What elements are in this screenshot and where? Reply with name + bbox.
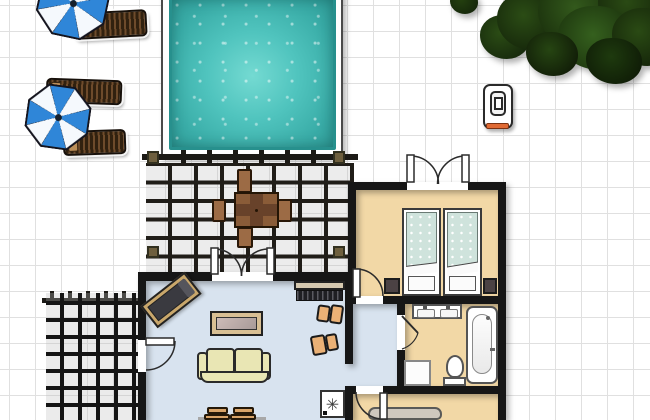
coffee-table-top (216, 317, 257, 330)
pergola-post-tick (207, 150, 212, 163)
bed-pillow (408, 276, 435, 291)
pergola-post-tick (285, 150, 290, 163)
chair-back (207, 407, 228, 414)
chair-seat (204, 414, 230, 420)
outdoor-chair[interactable] (237, 227, 253, 248)
chair-seat (230, 414, 256, 420)
hallway-floor (345, 300, 401, 390)
stove[interactable]: ✳ (320, 390, 345, 418)
stove-corner-dot (323, 411, 327, 415)
sideboard-top (294, 281, 345, 290)
toilet-tank (443, 377, 466, 386)
bed-pillow (449, 276, 476, 291)
bathtub[interactable] (466, 306, 498, 384)
doorway (407, 182, 468, 190)
coffee-table[interactable] (210, 311, 263, 336)
dining-chair[interactable] (230, 407, 257, 420)
sink (440, 309, 458, 318)
nightstand[interactable] (384, 278, 400, 294)
tree[interactable] (440, 0, 650, 110)
sideboard-body (296, 290, 343, 301)
faucet-icon (423, 306, 427, 309)
tree-foliage (586, 38, 642, 84)
grill-handle (494, 97, 503, 110)
doorway (356, 386, 383, 394)
pergola-post (333, 246, 345, 258)
dining-chair[interactable] (204, 407, 231, 420)
toilet[interactable] (446, 355, 464, 378)
outdoor-chair[interactable] (277, 199, 292, 222)
armchair[interactable] (316, 302, 346, 326)
trellis[interactable] (46, 293, 138, 420)
swimming-pool[interactable] (169, 0, 336, 150)
pergola-post-tick (311, 150, 316, 163)
armchair-back (325, 333, 340, 352)
pergola-post-tick (181, 150, 186, 163)
doorway (397, 315, 405, 350)
faucet-icon (446, 306, 450, 309)
wall (345, 281, 353, 364)
doorway (212, 272, 273, 281)
chair-back (233, 407, 254, 414)
tree-foliage (526, 32, 578, 76)
tub-handle-icon (490, 348, 495, 351)
doorway (138, 340, 146, 372)
pergola-post-tick (259, 150, 264, 163)
grill[interactable] (483, 84, 513, 129)
floor-plan-canvas: ✳ (0, 0, 650, 420)
pergola-post (147, 151, 159, 164)
double-sink-vanity[interactable] (412, 304, 462, 319)
bedroom-french-doors[interactable] (407, 155, 469, 184)
tub-faucet-icon (486, 316, 490, 320)
bed-blanket (447, 212, 478, 268)
outdoor-chair[interactable] (237, 169, 252, 193)
sink (417, 309, 435, 318)
bed[interactable] (443, 208, 482, 296)
tree-foliage (450, 0, 478, 14)
bed[interactable] (402, 208, 441, 296)
outdoor-table[interactable] (234, 192, 279, 228)
armchair-seat (329, 304, 345, 325)
outdoor-chair[interactable] (212, 199, 226, 222)
umbrella-pole-icon (69, 0, 77, 7)
sofa-back (200, 371, 269, 383)
wall (345, 386, 353, 420)
grill-accent-bar (486, 123, 509, 129)
doorway (356, 296, 383, 304)
table-center-dot (255, 209, 258, 212)
bed-blanket (406, 212, 437, 268)
pergola-post (147, 246, 159, 258)
umbrella-pole-icon (54, 113, 62, 121)
bathroom-cabinet[interactable] (404, 360, 431, 386)
bed-headboard[interactable] (368, 407, 442, 420)
pergola-post-tick (233, 150, 238, 163)
tub-basin (472, 314, 492, 374)
pergola-post (333, 151, 345, 164)
stove-burner-icon: ✳ (326, 395, 339, 414)
pergola-top-beam (142, 154, 358, 160)
nightstand[interactable] (483, 278, 497, 294)
